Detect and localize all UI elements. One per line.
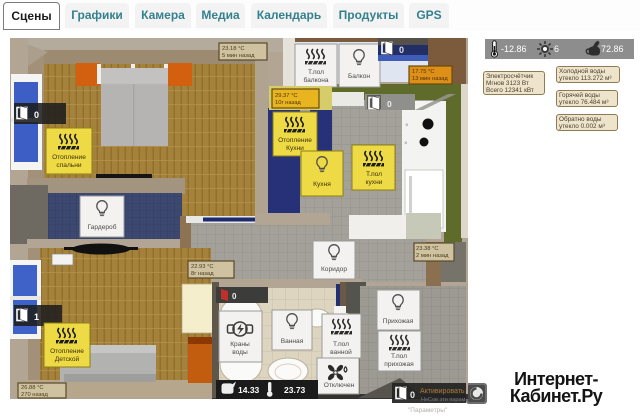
svg-text:1: 1 (34, 312, 39, 322)
svg-text:0: 0 (387, 99, 392, 109)
svg-text:23.18 °C: 23.18 °C (222, 46, 245, 52)
svg-text:17.75 °C: 17.75 °C (412, 69, 435, 75)
svg-text:Т.пол: Т.пол (391, 353, 407, 360)
svg-text:8г назад: 8г назад (191, 271, 214, 277)
svg-text:Коридор: Коридор (321, 266, 347, 273)
svg-text:22.93 °C: 22.93 °C (191, 264, 214, 270)
svg-text:Отопление: Отопление (278, 137, 312, 144)
svg-text:спальни: спальни (56, 162, 81, 169)
svg-text:Т.пол: Т.пол (366, 171, 382, 178)
svg-text:Т.пол: Т.пол (333, 341, 349, 348)
svg-text:балкона: балкона (303, 76, 328, 84)
svg-text:10г назад: 10г назад (275, 100, 301, 106)
svg-text:26.88 °C: 26.88 °C (21, 385, 44, 391)
svg-text:"Параметры": "Параметры" (408, 407, 448, 414)
svg-text:Краны: Краны (230, 341, 250, 348)
svg-text:Кухня: Кухня (313, 181, 331, 188)
svg-text:Отопление: Отопление (50, 348, 84, 355)
svg-text:0: 0 (399, 45, 404, 55)
svg-text:0: 0 (34, 110, 39, 120)
svg-text:Гардероб: Гардероб (87, 223, 116, 231)
svg-text:Прихожая: Прихожая (383, 318, 414, 325)
svg-text:кухни: кухни (366, 179, 383, 186)
svg-text:Детской: Детской (55, 355, 80, 363)
svg-text:прихожая: прихожая (384, 361, 414, 368)
svg-text:13 мин назад: 13 мин назад (412, 76, 448, 82)
svg-text:Балкон: Балкон (348, 73, 370, 80)
svg-text:НеСов эти парам: НеСов эти парам (421, 397, 465, 403)
svg-text:0: 0 (232, 292, 237, 301)
svg-text:23.38 °C: 23.38 °C (416, 246, 439, 252)
svg-text:Т.пол: Т.пол (308, 69, 324, 76)
svg-text:14.33: 14.33 (238, 385, 260, 395)
svg-text:23.73: 23.73 (284, 385, 306, 395)
svg-text:×: × (405, 123, 409, 129)
svg-text:Ванная: Ванная (281, 338, 304, 345)
svg-text:270 назад: 270 назад (21, 392, 49, 398)
svg-text:29.37 °C: 29.37 °C (275, 93, 298, 99)
svg-text:2 мин назад: 2 мин назад (416, 253, 449, 259)
svg-text:0: 0 (410, 390, 415, 400)
svg-text:Активировать: Активировать (420, 388, 465, 395)
svg-text:×: × (404, 141, 408, 147)
svg-text:5 мин назад: 5 мин назад (222, 53, 255, 59)
svg-text:Отключен: Отключен (324, 382, 355, 389)
svg-text:Отопление: Отопление (52, 154, 86, 161)
svg-text:воды: воды (232, 349, 248, 356)
svg-text:ванной: ванной (330, 348, 352, 356)
